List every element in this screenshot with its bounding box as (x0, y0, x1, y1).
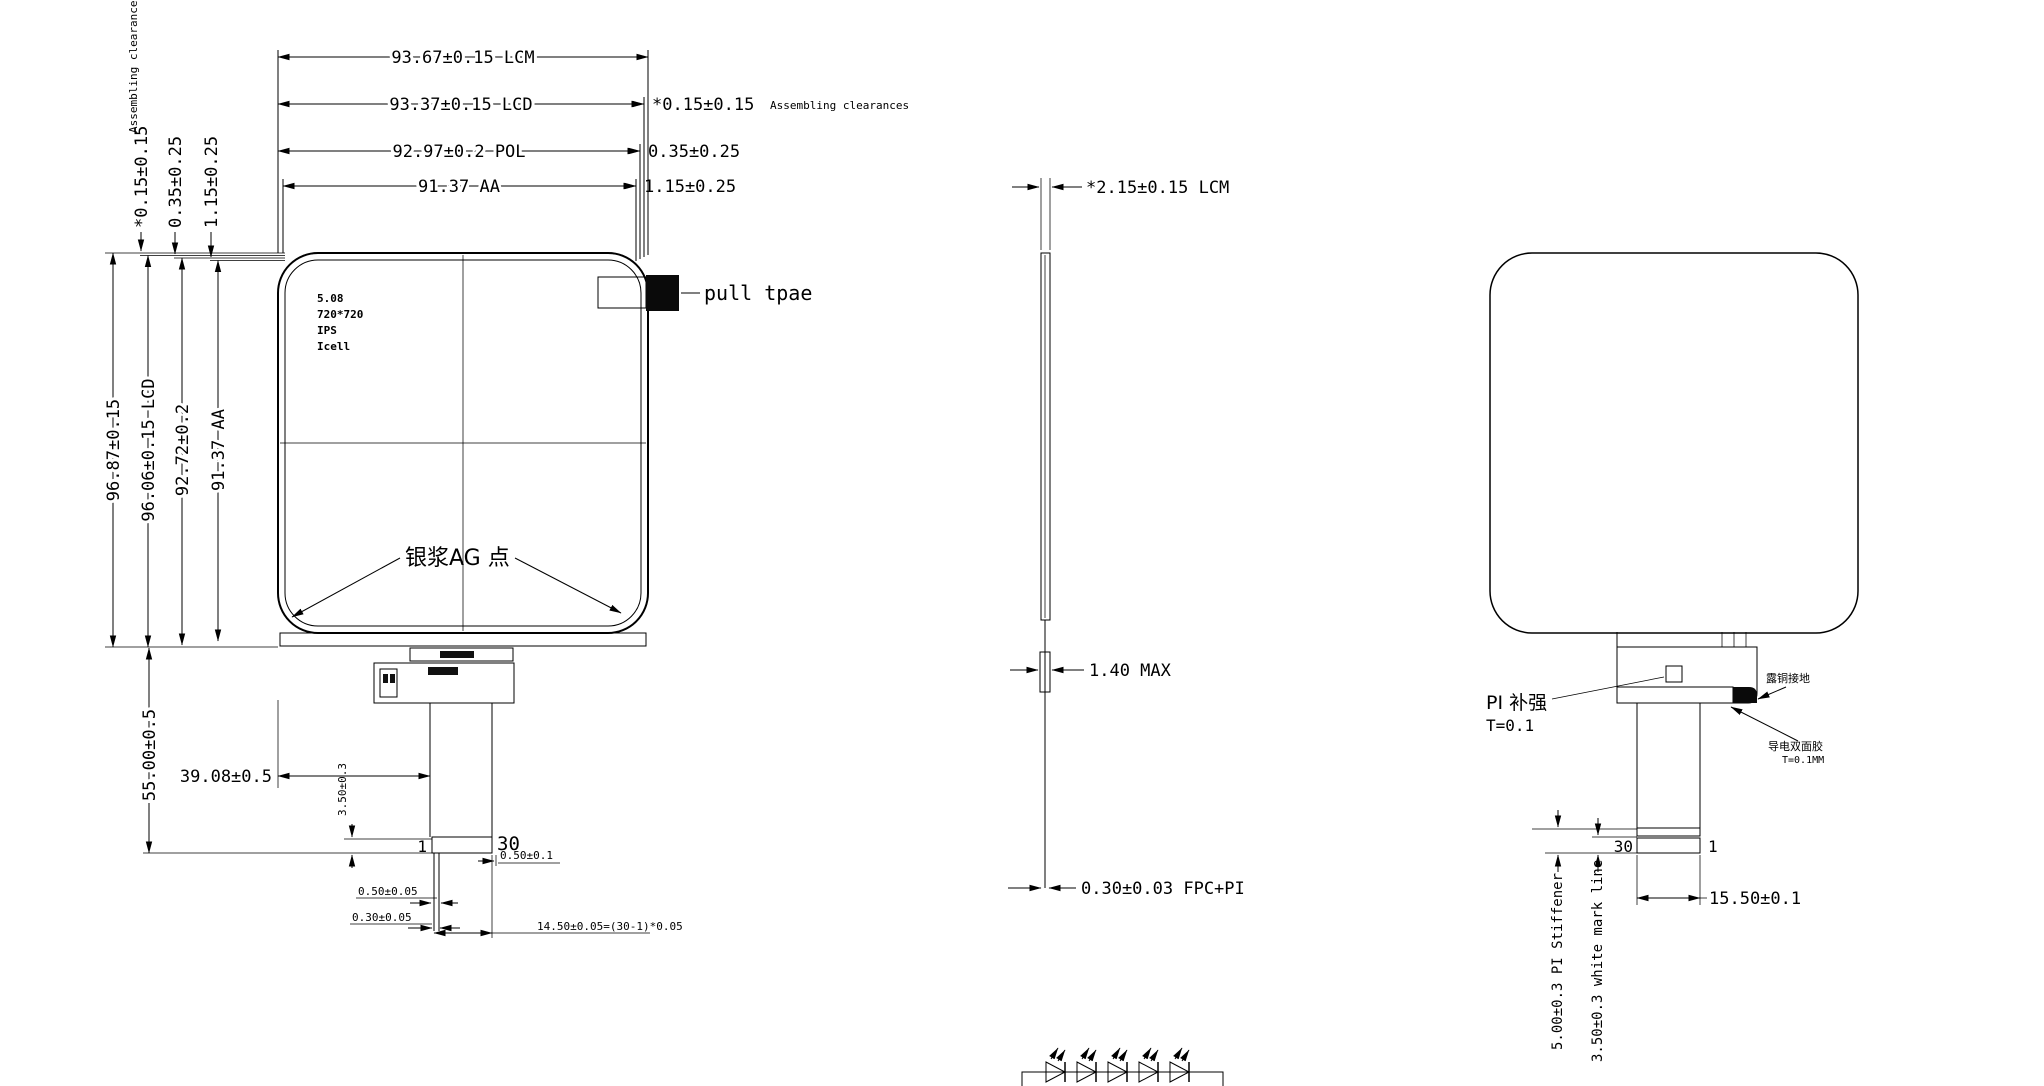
led-symbol (1139, 1048, 1158, 1082)
spec-panel-type: IPS (317, 324, 337, 337)
dim-height-lcm: 96.87±0.15 (104, 399, 124, 501)
back-pin-1-label: 1 (1708, 837, 1718, 856)
backlight-led-circuit (1022, 1048, 1223, 1086)
exposed-copper-label: 露铜接地 (1766, 671, 1810, 685)
front-right-gap-dimensions: *0.15±0.15 Assembling clearances 0.35±0.… (618, 95, 909, 197)
conductive-tape-thickness: T=0.1MM (1782, 755, 1824, 766)
gap-pol-aa-left: 1.15±0.25 (202, 136, 222, 228)
dim-mark-line-label: 3.50±0.3 white mark line (1590, 860, 1606, 1062)
dim-width-lcm: 93.67±0.15 LCM (391, 48, 534, 68)
front-tail-dimensions: 55.00±0.5 39.08±0.5 3.50±0.3 (140, 648, 432, 868)
connector-fingers (432, 837, 492, 853)
gap-lcd-pol-left: 0.35±0.25 (166, 136, 186, 228)
dim-end-margin: 0.50±0.1 (500, 849, 553, 862)
engineering-drawing-sheet: 93.67±0.15 LCM 93.37±0.15 LCD 92.97±0.2 … (0, 0, 2044, 1086)
dim-width-pol: 92.97±0.2 POL (392, 142, 525, 162)
white-mark-strip (1637, 828, 1700, 836)
spec-cell-type: Icell (317, 340, 350, 353)
dim-pin-width: 0.30±0.05 (352, 911, 412, 924)
conductive-tape-strip (1617, 687, 1733, 703)
front-view: 93.67±0.15 LCM 93.37±0.15 LCD 92.97±0.2 … (104, 0, 909, 938)
silver-ag-dot-callout: 银浆AG 点 (292, 546, 621, 617)
dim-pin-span: 14.50±0.05=(30-1)*0.05 (537, 920, 683, 933)
dim-thickness-lcm: *2.15±0.15 LCM (1086, 178, 1229, 198)
conductive-tape-label: 导电双面胶 (1768, 739, 1823, 753)
led-symbol (1077, 1048, 1096, 1082)
dim-pin-pitch: 0.50±0.05 (358, 885, 418, 898)
gap-lcm-lcd-left: *0.15±0.15 (132, 126, 152, 228)
dim-fpc-length: 55.00±0.5 (140, 709, 160, 801)
gap-lcd-pol-label: 0.35±0.25 (648, 142, 740, 162)
dim-stiffener-label: 5.00±0.3 PI Stiffener (1550, 873, 1566, 1050)
side-panel-slab (1041, 253, 1050, 620)
gap-lcm-lcd-label: *0.15±0.15 (652, 95, 754, 115)
back-view: 30 1 PI 补强 T=0.1 露铜接地 导电双面胶 T=0.1MM 15.5… (1486, 253, 1858, 1062)
side-view: *2.15±0.15 LCM 1.40 MAX 0.30±0.03 FPC+PI (1008, 178, 1245, 899)
dim-height-pol: 92.72±0.2 (173, 404, 193, 496)
dim-width-aa: 91.37 AA (418, 177, 500, 197)
spec-size: 5.08 (317, 292, 344, 305)
front-left-dimensions: Assembling clearances *0.15±0.15 0.35±0.… (104, 0, 285, 647)
front-panel-outline: 5.08 720*720 IPS Icell pull tpae (278, 253, 812, 633)
silver-dot-label: 银浆AG 点 (405, 546, 510, 571)
assembling-note-right: Assembling clearances (770, 99, 909, 112)
stiffener-strip (1637, 838, 1700, 853)
pi-reinforcement-patch (1666, 666, 1682, 682)
pi-thickness-label: T=0.1 (1486, 716, 1534, 735)
pi-reinforcement-label: PI 补强 (1486, 692, 1547, 714)
dim-width-lcd: 93.37±0.15 LCD (389, 95, 532, 115)
spec-resolution: 720*720 (317, 308, 363, 321)
led-symbol (1108, 1048, 1127, 1082)
dim-fpc-offset: 39.08±0.5 (180, 767, 272, 787)
led-symbol (1170, 1048, 1189, 1082)
front-top-dimensions: 93.67±0.15 LCM 93.37±0.15 LCD 92.97±0.2 … (278, 48, 648, 261)
component-marking (428, 667, 458, 675)
assembling-note-left: Assembling clearances (127, 0, 140, 133)
dim-height-aa: 91.37 AA (209, 409, 229, 491)
bonding-marking (440, 651, 474, 658)
pull-tab (646, 275, 679, 311)
dim-ic-max: 1.40 MAX (1089, 661, 1172, 681)
pull-tab-label: pull tpae (704, 281, 812, 305)
gap-pol-aa-label: 1.15±0.25 (644, 177, 736, 197)
exposed-copper-pad (1733, 687, 1757, 703)
back-panel-outline (1490, 253, 1858, 633)
dim-back-fpc-width: 15.50±0.1 (1709, 889, 1801, 909)
dim-fpc-thickness: 0.30±0.03 FPC+PI (1081, 879, 1245, 899)
dim-height-lcd: 96.06±0.15 LCD (139, 378, 159, 521)
dim-mark-gap: 3.50±0.3 (336, 763, 349, 816)
bottom-seal-strip (280, 633, 646, 646)
led-symbol (1046, 1048, 1065, 1082)
